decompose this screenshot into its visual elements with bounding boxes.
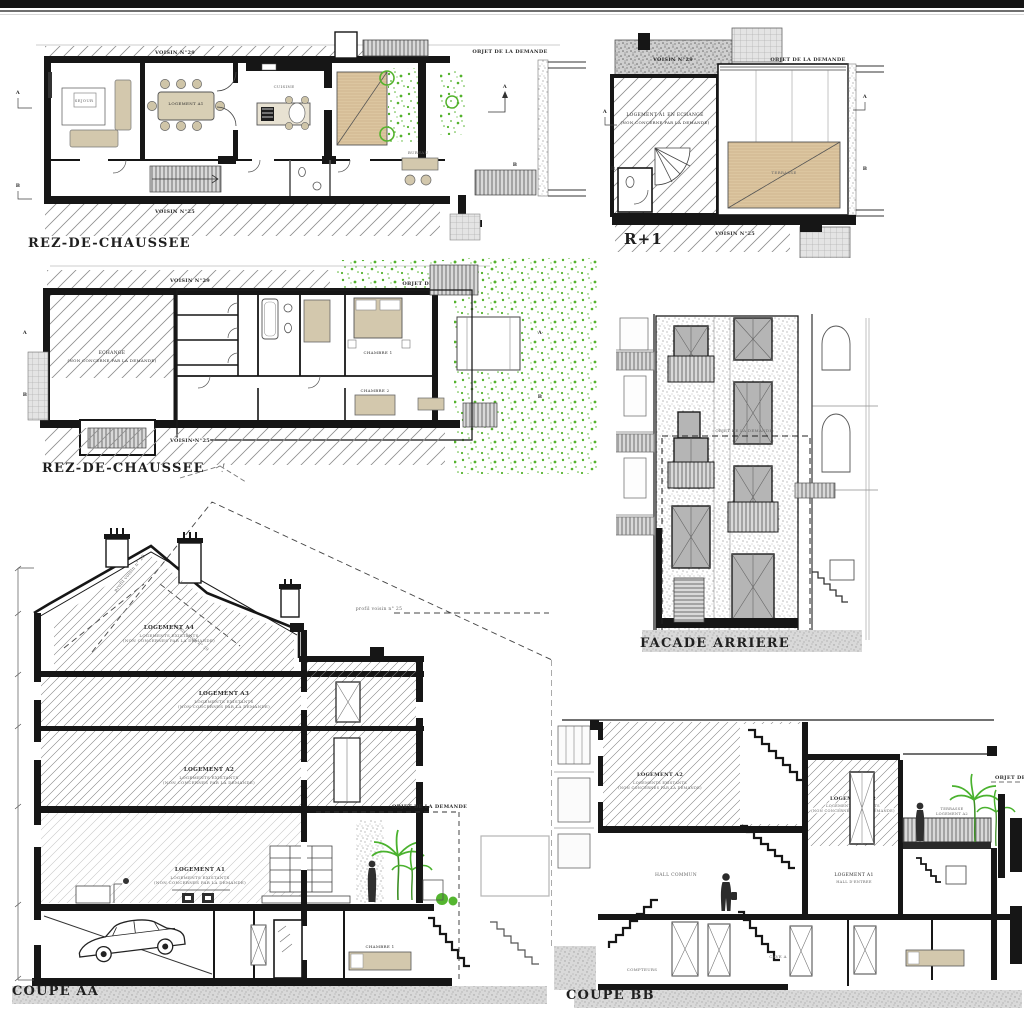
object-label: OBJET DE LA DEMANDE <box>392 804 467 810</box>
legend-box <box>481 836 549 896</box>
compteurs-label: COMPTEURS <box>627 967 658 972</box>
section-marker-b: B <box>513 162 518 168</box>
hall-entree-label: HALL D'ENTREE <box>836 880 872 884</box>
wc <box>290 160 330 196</box>
plan-rdc-bedrooms: VOISIN N°29 OBJET DE LA DEMANDE ECHANGE … <box>20 256 598 488</box>
terrace-label: TERRASSE <box>771 170 796 175</box>
section-marker-a: A <box>862 94 867 100</box>
facade-arriere: OBJET DE LA DEMANDE <box>616 310 880 658</box>
neighbor-top-label: VOISIN N°29 <box>154 50 195 56</box>
room-bureau-label: BUREAU <box>408 150 429 155</box>
right-neighbor-facade <box>795 314 878 642</box>
garden-stair <box>490 922 539 964</box>
existing-sub: (NON CONCERNES PAR LA DEMANDE) <box>123 638 215 643</box>
neighbor-25-hatch <box>45 428 445 465</box>
ground-left <box>554 946 596 990</box>
section-marker-a: A <box>22 330 27 336</box>
title-plan-r1: R+1 <box>624 230 663 248</box>
bathroom <box>258 295 300 376</box>
plan-rdc-ground-floor: VOISIN N°29 OBJET DE LA DEMANDE SEJOUR <box>6 30 592 252</box>
kitchen-furniture <box>246 63 326 130</box>
title-coupe-aa: COUPE AA <box>12 984 99 999</box>
cave-label: CAVE A <box>769 954 787 959</box>
storage-cells <box>175 295 238 376</box>
title-facade: FACADE ARRIERE <box>640 636 790 651</box>
page-top-bar <box>0 0 1024 8</box>
page-top-rule <box>0 10 1024 12</box>
room-chambre2-label: CHAMBRE 2 <box>361 388 390 393</box>
unit-label-1: LOGEMENT A1 EN ECHANGE <box>626 112 703 118</box>
existing-sub: (NON CONCERNES PAR LA DEMANDE) <box>154 880 246 885</box>
master-bed <box>348 298 410 348</box>
terrace-steps-top <box>363 40 428 56</box>
chambre-label: CHAMBRE 1 <box>366 944 395 949</box>
logement-a4-label: LOGEMENT A4 <box>144 625 194 631</box>
coupe-bb: LOGEMENT A2 LOGEMENTS EXISTANTS (NON CON… <box>554 698 1024 1016</box>
coupe-aa: profil voisin n° 29 profil voisin n° 29 … <box>4 480 552 1012</box>
logement-a3-label: LOGEMENT A3 <box>199 691 249 697</box>
hall-commun-label: HALL COMMUN <box>655 872 697 878</box>
dimension-line <box>15 566 34 981</box>
profil-voisin-25-label: profil voisin n° 25 <box>356 606 403 612</box>
exchange-label-2: (NON CONCERNE PAR LA DEMANDE) <box>68 358 157 363</box>
car <box>76 915 186 965</box>
neighbor-25-hatch <box>45 204 440 236</box>
object-label: OBJET DE LA DEMANDE <box>770 57 845 63</box>
section-marker-b: B <box>538 394 543 400</box>
logement-a1-label: LOGEMENT A1 <box>175 867 225 873</box>
neighbor-bottom-label: VOISIN N°25 <box>154 209 195 215</box>
logement-a1-label: LOGEMENT A1 <box>834 872 873 878</box>
title-plan-rdc-2: REZ-DE-CHAUSSEE <box>42 461 205 476</box>
section-marker-b: B <box>611 166 616 172</box>
title-plan-rdc-1: REZ-DE-CHAUSSEE <box>28 236 191 251</box>
section-marker-b: B <box>863 166 868 172</box>
garden-steps <box>463 403 497 427</box>
object-label: OBJET DE LA DEMANDE <box>995 775 1024 781</box>
section-marker-a: A <box>15 90 20 96</box>
unit-label-2: (NON CONCERNE PAR LA DEMANDE) <box>621 120 710 125</box>
page-top-rule-light <box>0 14 1024 15</box>
neighbor-bottom-label: VOISIN N°25 <box>169 438 210 444</box>
person-icon <box>721 873 737 911</box>
left-neighbor-facade <box>616 314 654 642</box>
terrace-label-2: LOGEMENT A2 <box>936 812 968 816</box>
room-sejour-label: SEJOUR <box>75 98 94 103</box>
annex-right-wall <box>538 60 548 196</box>
wardrobe <box>304 300 330 342</box>
exchange-zone <box>50 295 175 378</box>
living-room-furniture <box>48 72 131 147</box>
room-chambre1-label: CHAMBRE 1 <box>364 350 393 355</box>
left-neighbor <box>554 720 599 868</box>
section-marker-a: A <box>502 84 507 90</box>
object-label: OBJET DE LA DEMANDE <box>715 428 772 433</box>
glass-door <box>274 920 302 978</box>
neighbor-top-label: VOISIN N°29 <box>652 57 693 63</box>
garden-patch-2 <box>440 70 466 135</box>
existing-sub: (NON CONCERNES PAR LA DEMANDE) <box>163 780 255 785</box>
terrace-label-1: TERRASSE <box>941 807 964 811</box>
existing-sub: (NON CONCERNES PAR LA DEMANDE) <box>178 704 270 709</box>
section-marker-b: B <box>16 183 21 189</box>
wc-r1 <box>618 168 652 212</box>
stair-run <box>609 900 658 948</box>
bureau-furniture <box>402 158 438 185</box>
stair-run <box>916 858 941 882</box>
section-marker-b: B <box>23 392 28 398</box>
kitchen-bay <box>335 32 357 58</box>
person-icon <box>916 803 924 841</box>
room-cuisine-label: CUISINE <box>274 84 295 89</box>
rear-terrace <box>457 317 520 370</box>
annex-steps <box>475 170 536 195</box>
neighbor-top-label: VOISIN N°29 <box>169 278 210 284</box>
patio-palms <box>372 830 458 906</box>
plan-r1: VOISIN N°29 OBJET DE LA DEMANDE LOGEMENT… <box>596 22 884 258</box>
existing-sub: (NON CONCERNES PAR LA DEMANDE) <box>618 786 702 790</box>
logement-a2-label: LOGEMENT A2 <box>184 767 234 773</box>
section-marker-a: A <box>537 330 542 336</box>
bed-2 <box>355 395 395 415</box>
existing-sub: LOGEMENTS EXISTANTS <box>633 781 687 785</box>
stair-run <box>428 918 470 966</box>
logement-a2-left-label: LOGEMENT A2 <box>637 772 683 778</box>
title-coupe-bb: COUPE BB <box>566 988 655 1003</box>
section-marker-a: A <box>602 109 607 115</box>
drawing-sheet: VOISIN N°29 OBJET DE LA DEMANDE SEJOUR <box>0 0 1024 1022</box>
exchange-label-1: ECHANGE <box>99 350 126 356</box>
exterior-stair <box>674 578 704 622</box>
room-logement-label: LOGEMENT A1 <box>168 101 203 106</box>
object-label: OBJET DE LA DEMANDE <box>472 49 547 55</box>
